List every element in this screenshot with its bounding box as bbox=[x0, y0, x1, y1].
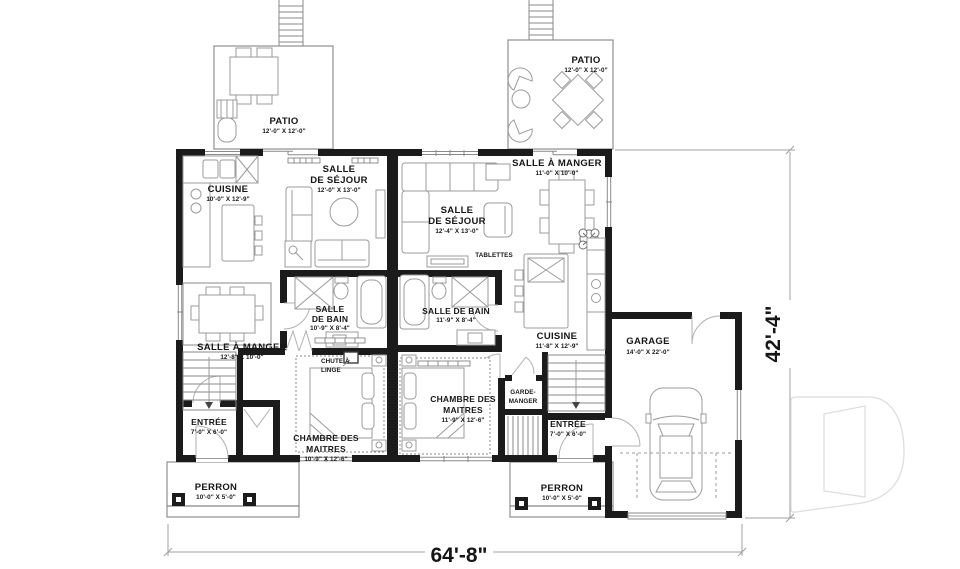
patio-table bbox=[230, 48, 278, 104]
garage-side-door bbox=[692, 316, 720, 344]
tv-console bbox=[376, 190, 385, 238]
label-garage-name: GARAGE bbox=[626, 336, 670, 347]
label-cuisine-right-name: CUISINE bbox=[537, 331, 578, 342]
label-manger-left-name: SALLE À MANGER bbox=[197, 342, 287, 353]
pillow bbox=[362, 373, 374, 399]
label-garde-manger-2: MANGER bbox=[509, 398, 538, 405]
window-cuisine-left bbox=[205, 152, 240, 155]
floor-plan-drawing: PATIO 12'-0" X 12'-0" PATIO 12'-0" X 12'… bbox=[0, 0, 960, 569]
label-entree-right-name: ENTRÉE bbox=[550, 419, 586, 429]
patio-diamond-table bbox=[553, 72, 604, 129]
label-sejour-left-name2: DE SÉJOUR bbox=[310, 175, 368, 186]
overall-height-dimension: 42'-4" bbox=[762, 306, 785, 363]
label-cuisine-left-name: CUISINE bbox=[208, 184, 249, 195]
side-table bbox=[486, 164, 510, 180]
window-manger-left bbox=[177, 285, 183, 340]
garage-contents bbox=[620, 388, 732, 500]
stove-burner bbox=[592, 294, 601, 303]
label-cuisine-left-dims: 10'-0" X 12'-9" bbox=[206, 196, 249, 203]
label-chambre-right-name2: MAITRES bbox=[443, 405, 483, 415]
label-garde-manger-1: GARDE- bbox=[510, 389, 535, 396]
label-manger-right-name: SALLE À MANGER bbox=[512, 158, 602, 169]
car bbox=[646, 388, 706, 500]
fridge bbox=[587, 238, 605, 274]
window-garage bbox=[737, 390, 740, 440]
armchair bbox=[484, 203, 512, 237]
label-patio-left-dims: 12'-0" X 12'-0" bbox=[262, 128, 305, 135]
watermark-d-logo bbox=[791, 397, 904, 512]
label-chambre-right-name1: CHAMBRE DES bbox=[430, 394, 496, 404]
stove-burner bbox=[191, 189, 201, 199]
label-bain-left-name1: SALLE bbox=[316, 304, 345, 314]
patio-bistro-set bbox=[506, 65, 534, 145]
label-entree-left-dims: 7'-0" X 6'-0" bbox=[191, 429, 227, 436]
label-sejour-left-name1: SALLE bbox=[323, 164, 356, 175]
label-perron-left-dims: 10'-0" X 5'-0" bbox=[196, 494, 236, 501]
floor-plan-page: PATIO 12'-0" X 12'-0" PATIO 12'-0" X 12'… bbox=[0, 0, 960, 569]
party-wall bbox=[387, 149, 398, 462]
garage-door bbox=[628, 513, 726, 519]
pillow bbox=[404, 373, 416, 399]
window-sejour-right bbox=[422, 150, 478, 156]
label-sejour-right-dims: 12'-4" X 13'-0" bbox=[435, 228, 478, 235]
window-chambre-right bbox=[420, 456, 492, 462]
pillow bbox=[404, 403, 416, 429]
label-sejour-right-name1: SALLE bbox=[441, 205, 474, 216]
label-perron-right-dims: 10'-0" X 5'-0" bbox=[542, 495, 582, 502]
label-bain-right-name: SALLE DE BAIN bbox=[422, 306, 490, 316]
label-manger-right-dims: 11'-0" X 10'-0" bbox=[535, 170, 578, 177]
label-patio-left-name: PATIO bbox=[269, 116, 298, 127]
label-garage-dims: 14'-0" X 22'-0" bbox=[626, 349, 669, 356]
label-cuisine-right-dims: 11'-8" X 12'-9" bbox=[535, 343, 578, 350]
round-coffee-table bbox=[330, 198, 358, 226]
overall-width-dimension: 64'-8" bbox=[431, 544, 488, 567]
label-patio-right-dims: 12'-0" X 12'-0" bbox=[564, 67, 607, 74]
kitchen-sink bbox=[203, 160, 218, 178]
label-bain-left-dims: 10'-9" X 8'-4" bbox=[310, 325, 350, 332]
stair-direction-arrow bbox=[205, 402, 213, 409]
label-bain-right-dims: 11'-9" X 8'-4" bbox=[436, 317, 475, 324]
patio-right-exterior-stairs bbox=[529, 0, 553, 40]
stove-burner bbox=[191, 203, 201, 213]
kitchen-island bbox=[222, 205, 254, 261]
window-manger-right bbox=[606, 177, 612, 227]
patio-slider-left bbox=[263, 151, 318, 154]
stove-burner bbox=[592, 280, 601, 289]
stairs-right bbox=[548, 355, 605, 411]
toilet bbox=[432, 283, 446, 299]
manger-left-furniture bbox=[183, 283, 271, 345]
closet-left-bifold bbox=[244, 409, 270, 427]
patio-left-exterior-stairs bbox=[279, 0, 303, 46]
label-perron-left-name: PERRON bbox=[195, 482, 237, 493]
toilet-tank bbox=[433, 277, 446, 283]
label-sejour-left-dims: 12'-0" X 13'-0" bbox=[317, 187, 360, 194]
label-entree-right-dims: 7'-0" X 6'-0" bbox=[550, 431, 586, 438]
stair-direction-arrow bbox=[572, 402, 580, 409]
label-chambre-left-dims: 10'-9" X 12'-6" bbox=[304, 456, 347, 463]
dining-table bbox=[199, 295, 255, 333]
hall-left-door bbox=[193, 376, 220, 403]
toilet bbox=[334, 283, 348, 299]
label-chute-2: LINGE bbox=[321, 367, 341, 374]
garde-manger-closet bbox=[508, 416, 538, 455]
label-chambre-left-name2: MAITRES bbox=[306, 444, 346, 454]
label-patio-right-name: PATIO bbox=[571, 55, 600, 66]
label-chambre-left-name1: CHAMBRE DES bbox=[293, 433, 359, 443]
garde-manger-door bbox=[512, 357, 534, 375]
patio-right bbox=[506, 0, 613, 149]
bbq-grill bbox=[217, 100, 237, 142]
label-sejour-right-name2: DE SÉJOUR bbox=[428, 216, 486, 227]
toilet-tank bbox=[335, 277, 348, 283]
label-bain-left-name2: DE BAIN bbox=[312, 314, 348, 324]
side-mirror bbox=[701, 414, 706, 423]
cuisine-left-fixtures bbox=[183, 156, 262, 267]
label-chambre-right-dims: 11'-9" X 12'-6" bbox=[441, 417, 484, 424]
garage-house-door bbox=[612, 418, 640, 446]
lamp-table bbox=[285, 241, 311, 267]
label-manger-left-dims: 12'-8" X 10'-0" bbox=[220, 354, 263, 361]
label-entree-left-name: ENTRÉE bbox=[191, 417, 227, 427]
pillow bbox=[362, 403, 374, 429]
label-perron-right-name: PERRON bbox=[541, 483, 583, 494]
label-tablettes: TABLETTES bbox=[475, 252, 513, 259]
label-chute-1: CHUTE À bbox=[321, 356, 350, 365]
entree-right-door bbox=[559, 424, 593, 458]
patio-slider-right bbox=[533, 151, 577, 154]
chambre-left-double-doors bbox=[286, 331, 312, 351]
side-mirror bbox=[646, 414, 651, 423]
